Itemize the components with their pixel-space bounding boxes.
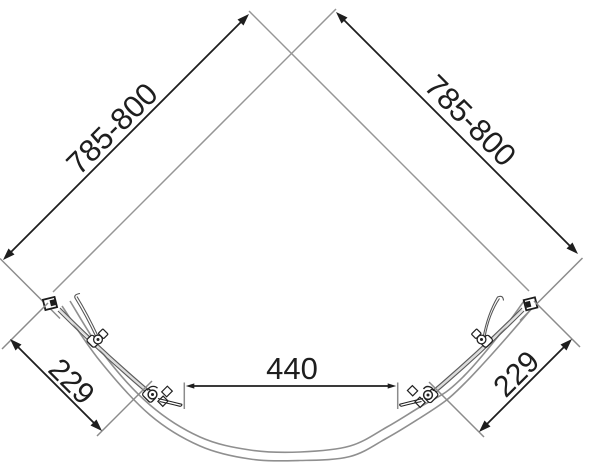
svg-text:440: 440 (266, 351, 318, 386)
